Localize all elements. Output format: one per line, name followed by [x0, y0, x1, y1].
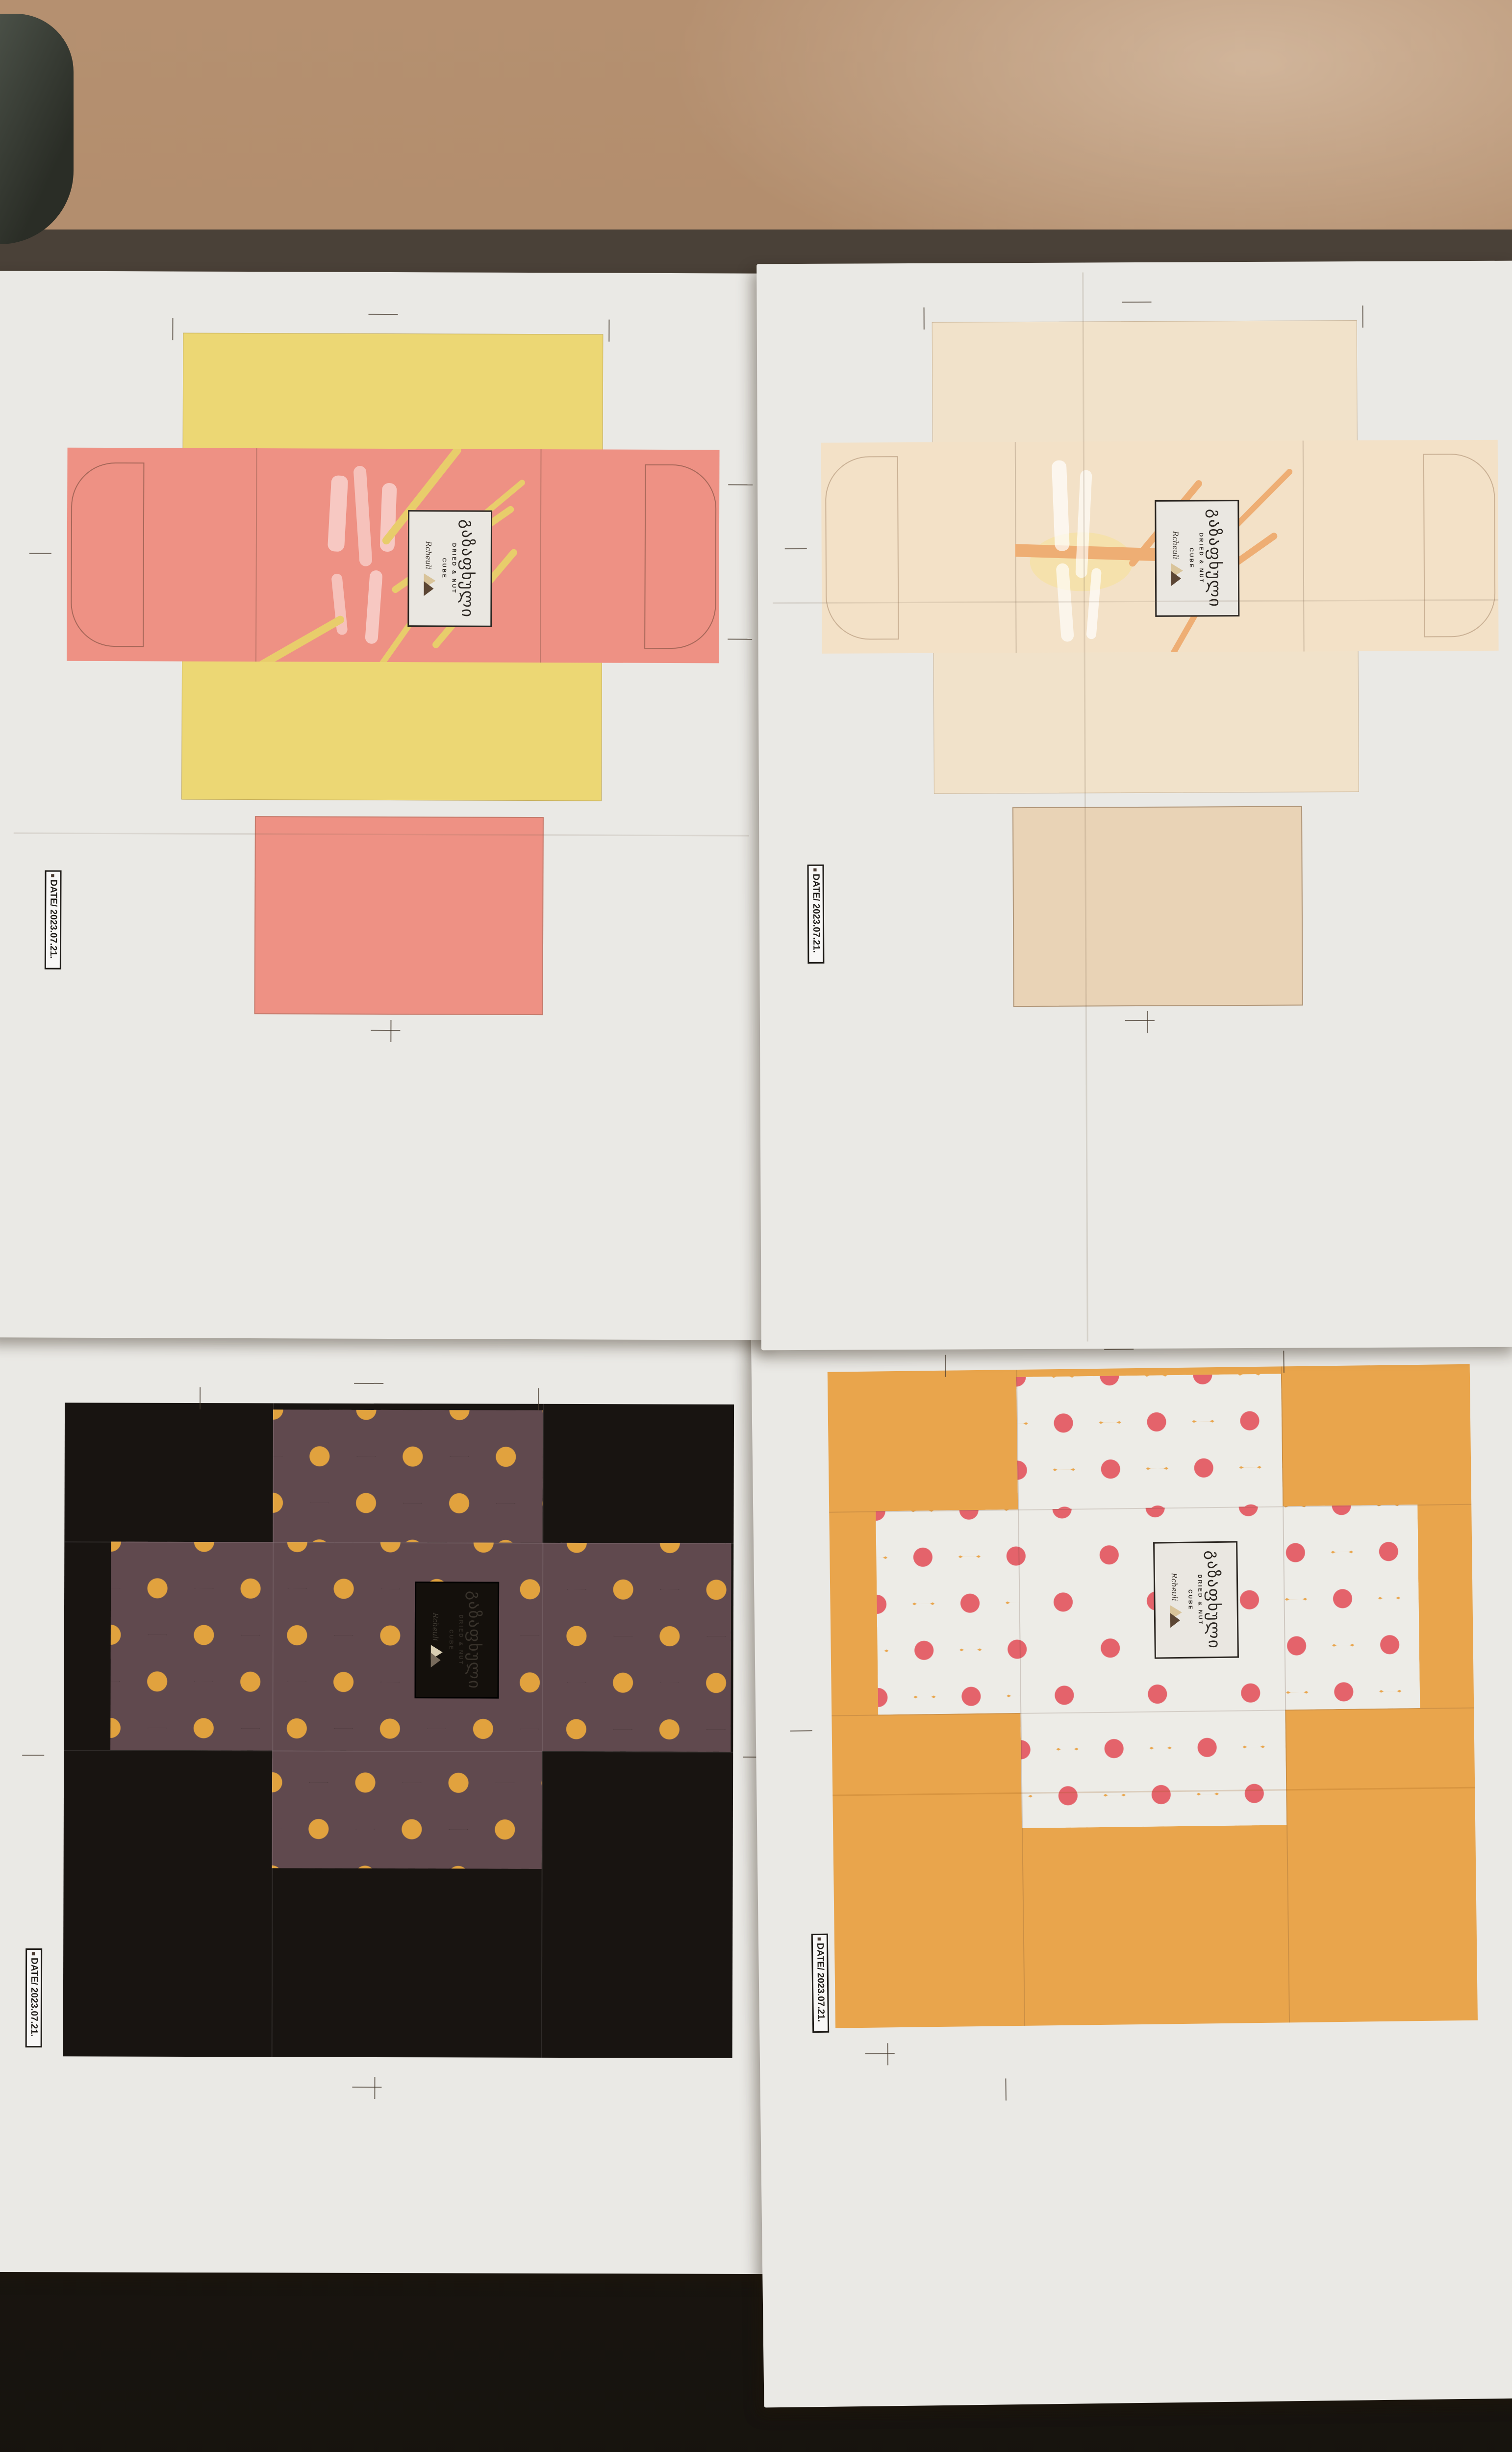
label-subtitle-line2: CUBE — [1186, 1589, 1193, 1610]
branch-stroke — [1233, 468, 1294, 530]
label-signature: Rcheuli — [1171, 531, 1180, 560]
registration-mark — [390, 1020, 391, 1042]
registration-mark — [945, 1355, 946, 1377]
daisy-pattern-band — [876, 1505, 1420, 1714]
registration-mark — [352, 2087, 381, 2088]
box-label: გაზაფხული DRIED & NUT CUBE Rcheuli — [1155, 500, 1239, 617]
registration-mark — [371, 1030, 400, 1031]
label-subtitle-line2: CUBE — [448, 1630, 454, 1651]
date-stamp: ■ DATE/ 2023.07.21. — [811, 1934, 829, 2033]
photo-scene: გაზაფხული DRIED & NUT CUBE Rcheuli — [0, 0, 1512, 2452]
box-label: გაზაფხული DRIED & NUT CUBE Rcheuli — [1153, 1541, 1239, 1659]
label-signature: Rcheuli — [1170, 1573, 1179, 1601]
registration-mark — [728, 484, 753, 485]
dieline-panel-orange: გაზაფხული DRIED & NUT CUBE Rcheuli — [828, 1364, 1478, 2028]
registration-mark — [1005, 2078, 1007, 2100]
registration-mark — [200, 1387, 201, 1409]
registration-mark — [368, 314, 398, 315]
stamp-square-icon: ■ — [31, 1952, 37, 1956]
dieline-bottom-flap — [1012, 806, 1303, 1007]
stamp-text: DATE/ 2023.07.21. — [48, 879, 59, 958]
registration-mark — [374, 2077, 375, 2099]
registration-mark — [538, 1388, 539, 1410]
registration-mark — [29, 553, 51, 554]
registration-mark — [1125, 1020, 1155, 1021]
tuck-flap-outline — [1423, 454, 1496, 638]
tuck-flap-outline — [644, 464, 716, 649]
registration-mark — [924, 307, 925, 330]
label-subtitle-line1: DRIED & NUT — [1196, 1574, 1203, 1625]
dieline-bottom-flap — [254, 816, 544, 1015]
branch-stroke — [1052, 460, 1070, 551]
mountain-shadow-icon — [1171, 571, 1181, 586]
stamp-square-icon: ■ — [816, 1937, 823, 1941]
registration-mark — [1283, 1351, 1285, 1373]
registration-mark — [1104, 1349, 1134, 1350]
stamp-text: DATE/ 2023.07.21. — [28, 1958, 39, 2037]
label-subtitle-line1: DRIED & NUT — [457, 1614, 464, 1665]
stamp-square-icon: ■ — [50, 874, 56, 878]
label-subtitle-line2: CUBE — [1187, 548, 1194, 569]
registration-mark — [865, 2053, 895, 2054]
dieline-band-salmon: გაზაფხული DRIED & NUT CUBE Rcheuli — [67, 448, 720, 664]
branch-stroke — [328, 475, 349, 552]
dieline-band-cream: გაზაფხული DRIED & NUT CUBE Rcheuli — [821, 440, 1499, 654]
label-signature: Rcheuli — [424, 541, 432, 570]
label-subtitle-line1: DRIED & NUT — [450, 543, 457, 594]
registration-mark — [354, 1383, 383, 1384]
registration-mark — [608, 320, 609, 342]
stamp-square-icon: ■ — [812, 868, 819, 872]
registration-mark — [172, 318, 173, 340]
label-title-georgian: გაზაფხული — [460, 519, 477, 618]
proof-sheet-black: გაზაფხული DRIED & NUT CUBE Rcheuli — [0, 1318, 779, 2274]
stamp-text: DATE/ 2023.07.21. — [814, 1943, 826, 2022]
label-subtitle-line2: CUBE — [440, 558, 447, 579]
label-title-georgian: გაზაფხული — [467, 1591, 483, 1689]
label-signature: Rcheuli — [431, 1612, 440, 1641]
date-stamp: ■ DATE/ 2023.07.21. — [807, 865, 825, 964]
date-stamp: ■ DATE/ 2023.07.21. — [45, 870, 62, 970]
mountain-shadow-icon — [1170, 1613, 1180, 1628]
date-stamp: ■ DATE/ 2023.07.21. — [25, 1948, 43, 2047]
registration-mark — [1362, 306, 1363, 328]
registration-mark — [1122, 302, 1152, 303]
branch-stroke — [353, 465, 373, 566]
tuck-flap-outline — [71, 462, 144, 647]
proof-sheet-orange: გაზაფხული DRIED & NUT CUBE Rcheuli — [751, 1315, 1512, 2408]
label-title-georgian: გაზაფხული — [1206, 1550, 1223, 1649]
branch-stroke — [365, 570, 383, 644]
box-label: გაზაფხული DRIED & NUT CUBE Rcheuli — [415, 1582, 500, 1698]
mountain-shadow-icon — [430, 1653, 440, 1667]
registration-mark — [790, 1730, 812, 1732]
registration-mark — [887, 2043, 888, 2065]
registration-mark — [728, 639, 752, 639]
branch-stroke — [256, 614, 346, 663]
stamp-text: DATE/ 2023.07.21. — [810, 874, 822, 953]
registration-mark — [785, 548, 807, 549]
dieline-panel-black: გაზაფხული DRIED & NUT CUBE Rcheuli — [63, 1403, 734, 2058]
proof-sheet-salmon: გაზაფხული DRIED & NUT CUBE Rcheuli — [0, 271, 779, 1340]
registration-mark — [22, 1755, 44, 1756]
label-subtitle-line1: DRIED & NUT — [1197, 533, 1204, 584]
front-panel-artwork: გაზაფხული DRIED & NUT CUBE Rcheuli — [1015, 441, 1304, 653]
mountain-shadow-icon — [424, 581, 433, 596]
tuck-flap-outline — [825, 456, 899, 640]
proof-sheet-cream: გაზაფხული DRIED & NUT CUBE Rcheuli — [756, 261, 1512, 1351]
box-label: გაზაფხული DRIED & NUT CUBE Rcheuli — [407, 510, 492, 627]
registration-mark — [1147, 1011, 1148, 1033]
front-panel-artwork: გაზაფხული DRIED & NUT CUBE Rcheuli — [255, 448, 541, 663]
label-title-georgian: გაზაფხული — [1207, 509, 1224, 608]
